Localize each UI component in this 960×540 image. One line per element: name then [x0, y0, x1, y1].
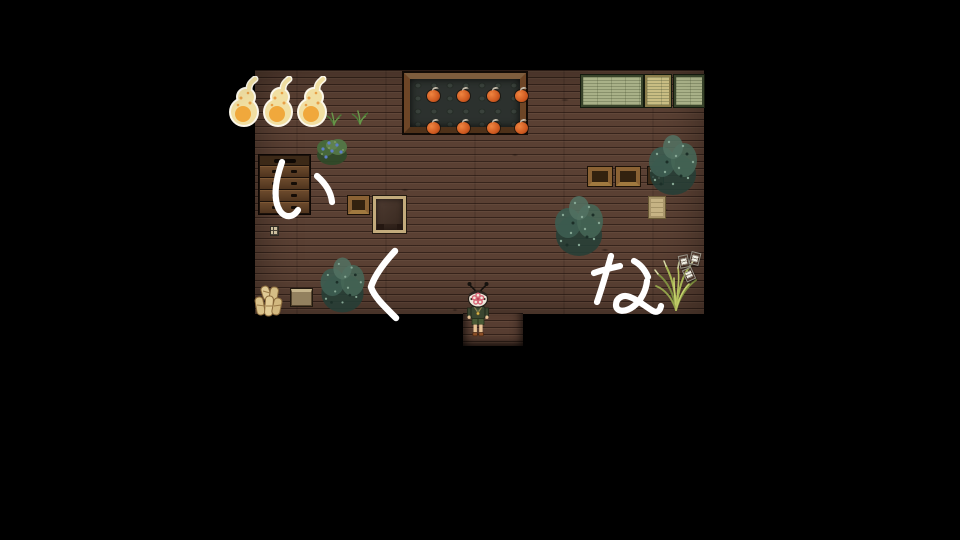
- teal-bush: [549, 192, 609, 260]
- persimmon-icon: [487, 122, 500, 134]
- persimmon-icon: [457, 122, 470, 134]
- grass-tuft: [326, 112, 342, 126]
- wooden-crate: [348, 196, 369, 214]
- straw-bundle: [254, 284, 284, 317]
- gourd-lantern-icon: [297, 76, 327, 128]
- wooden-crate: [616, 167, 640, 186]
- persimmon-icon: [515, 122, 528, 134]
- persimmon-icon: [515, 90, 528, 102]
- tatami-mat: [674, 75, 704, 107]
- dresser-drawer: [260, 178, 309, 189]
- charm-item-icon: [270, 226, 279, 236]
- tatami-mat: [581, 75, 643, 107]
- dresser-lid: [260, 156, 309, 165]
- low-table: [373, 196, 406, 233]
- gourd-lantern-icon: [263, 76, 293, 128]
- dresser: [258, 154, 311, 215]
- persimmon-icon: [427, 90, 440, 102]
- tatami-mat: [645, 75, 671, 107]
- berry-bush: [315, 136, 349, 166]
- teal-bush: [643, 132, 703, 198]
- small-mat: [291, 289, 312, 306]
- dresser-drawer: [260, 202, 309, 213]
- player-character: [459, 281, 497, 339]
- persimmon-icon: [457, 90, 470, 102]
- persimmon-table: [404, 73, 526, 133]
- dresser-drawer: [260, 166, 309, 177]
- teal-bush: [315, 254, 370, 316]
- game-viewport[interactable]: いくな: [0, 0, 960, 540]
- persimmon-icon: [427, 122, 440, 134]
- wooden-crate: [588, 167, 612, 186]
- paper-panel: [648, 196, 666, 219]
- gourd-lantern-icon: [229, 76, 259, 128]
- dresser-drawer: [260, 190, 309, 201]
- persimmon-icon: [487, 90, 500, 102]
- grass-tuft: [351, 110, 369, 125]
